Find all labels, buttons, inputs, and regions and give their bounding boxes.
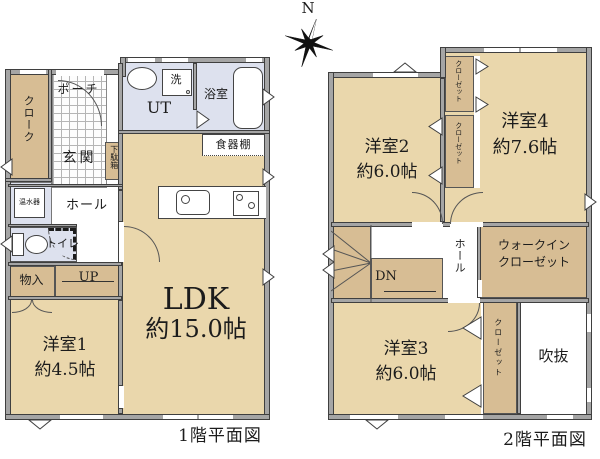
stove-burner-icon — [248, 202, 255, 209]
wic-label-line1: ウォークイン — [479, 239, 589, 252]
door-opening — [477, 280, 482, 297]
window — [445, 414, 483, 420]
f1-room1 — [8, 300, 122, 414]
ut-label: UT — [122, 99, 196, 117]
window — [163, 414, 197, 420]
wall — [264, 57, 270, 420]
compass-icon — [283, 16, 335, 68]
wall — [5, 178, 52, 182]
porch-opening — [56, 69, 104, 76]
room2-size-label: 約6.0帖 — [331, 163, 443, 182]
wall — [8, 184, 123, 187]
room4-name-label: 洋室4 — [455, 112, 595, 132]
vent-marker-icon — [393, 62, 417, 73]
floor-plan-canvas: N — [0, 0, 600, 459]
closet-upper-label: クローゼット — [454, 60, 462, 102]
window — [60, 414, 103, 420]
window — [586, 388, 592, 402]
stove-burner-icon — [236, 194, 243, 201]
window — [128, 57, 155, 63]
wall — [8, 262, 122, 266]
window — [586, 314, 592, 332]
vent-marker-icon — [584, 193, 597, 211]
vent-marker-icon — [262, 88, 275, 106]
vent-marker-icon — [322, 261, 335, 279]
kitchen-faucet-icon — [181, 195, 190, 204]
room4-size-label: 約7.6帖 — [455, 138, 595, 158]
closet-door-icon — [475, 58, 489, 75]
window — [20, 69, 46, 75]
vent-marker-icon — [0, 158, 13, 176]
window — [484, 47, 519, 53]
wall — [586, 47, 592, 420]
void-label: 吹抜 — [521, 348, 586, 365]
closet-door-icon — [462, 316, 482, 340]
wall — [118, 63, 123, 190]
ldk-size-label: 約15.0帖 — [122, 316, 270, 342]
f1-room-ldk — [122, 132, 266, 414]
window — [246, 57, 262, 63]
closet-door-icon — [428, 166, 443, 185]
cupboard-label: 食器棚 — [202, 139, 265, 151]
room3-size-label: 約6.0帖 — [331, 365, 481, 384]
vent-marker-icon — [365, 419, 389, 430]
porch-label: ポーチ — [50, 83, 107, 96]
window — [547, 414, 573, 420]
bathroom-label: 浴室 — [196, 88, 236, 101]
wall — [118, 408, 123, 414]
vent-marker-icon — [0, 235, 13, 253]
closet-mid-label: クローゼット — [454, 122, 462, 164]
stair-arrow — [384, 291, 436, 292]
window — [162, 57, 188, 63]
room1-size-label: 約4.5帖 — [8, 361, 122, 380]
room2-name-label: 洋室2 — [331, 138, 443, 157]
wic-label-line2: クローゼット — [479, 256, 589, 269]
bath-door-icon — [196, 110, 210, 129]
room1-name-label: 洋室1 — [8, 336, 122, 355]
closet-door-icon — [428, 117, 443, 136]
closet-lower-label: クローゼット — [493, 318, 502, 378]
washbasin-icon — [127, 67, 157, 90]
wall — [440, 47, 446, 78]
shoe-cabinet-label: 下駄箱 — [109, 145, 118, 169]
toilet-tank-icon — [12, 233, 24, 256]
stair-arrow — [62, 281, 114, 282]
kitchen-sink-icon — [176, 190, 210, 215]
toilet-bowl-icon — [25, 235, 48, 254]
hall2-label: ホール — [453, 238, 465, 274]
stairs-up-label: UP — [55, 271, 122, 285]
entrance-label: 玄関 — [52, 151, 107, 166]
vent-marker-icon — [262, 168, 275, 186]
wall — [8, 224, 77, 227]
sliding-door — [118, 386, 124, 408]
vent-marker-icon — [28, 419, 52, 430]
bathtub-icon — [233, 67, 263, 129]
ldk-name-label: LDK — [122, 283, 270, 316]
window — [199, 414, 233, 420]
closet-door-icon — [462, 384, 482, 408]
cloak-label: クローク — [22, 95, 34, 143]
toilet-label: トイレ — [46, 238, 76, 250]
vent-marker-icon — [262, 268, 275, 286]
hall-label: ホール — [52, 199, 122, 213]
storage-label: 物入 — [8, 274, 55, 287]
stair-winder-lines — [331, 225, 372, 302]
compass-north-label: N — [293, 0, 323, 17]
floor2-caption: 2階平面図 — [495, 431, 595, 450]
floor1-caption: 1階平面図 — [160, 427, 280, 446]
room3-name-label: 洋室3 — [331, 340, 481, 359]
window — [521, 47, 557, 53]
washer-label: 洗 — [164, 74, 188, 86]
closet-door-icon — [475, 96, 489, 113]
washer-drain-icon — [186, 90, 190, 94]
water-heater-label: 温水器 — [14, 199, 45, 207]
